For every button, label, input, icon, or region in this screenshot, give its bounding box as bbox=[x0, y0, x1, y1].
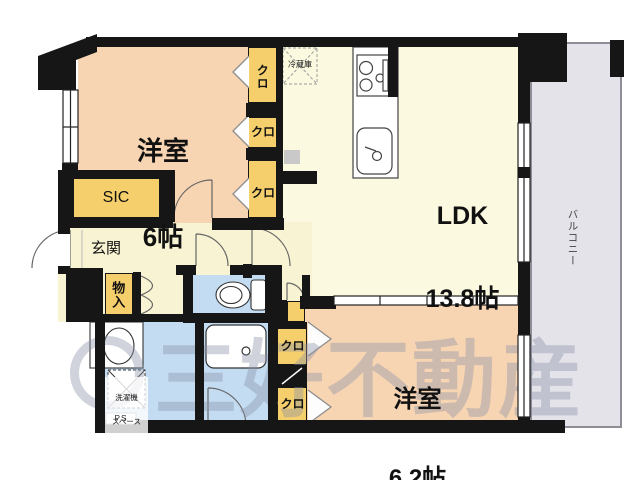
refrigerator-label: 冷蔵庫 bbox=[283, 61, 317, 70]
window-west-room1 bbox=[63, 90, 78, 163]
balcony-label: バルコニー bbox=[566, 206, 578, 270]
bathroom-floor bbox=[203, 318, 268, 426]
wall-notch-gray bbox=[284, 150, 300, 164]
closet3-label: クロ bbox=[248, 187, 278, 200]
closet1-label: クロ bbox=[255, 54, 268, 100]
monoire-label: 物入 bbox=[110, 277, 124, 313]
closet-small-box bbox=[287, 301, 305, 322]
washer-space-label: 洗濯機 スペース bbox=[105, 377, 148, 443]
floorplan-canvas: 三好不動産 bbox=[0, 0, 640, 480]
western-room2-label: 洋室 6.2帖 bbox=[350, 334, 485, 480]
ps-label: PS bbox=[106, 414, 136, 423]
closet2-label: クロ bbox=[248, 126, 278, 139]
sic-label: SIC bbox=[86, 189, 146, 207]
separator-slash bbox=[282, 368, 302, 384]
closet4-label: クロ bbox=[277, 340, 308, 353]
closet5-label: クロ bbox=[277, 398, 308, 411]
genkan-label: 玄関 bbox=[80, 241, 132, 258]
